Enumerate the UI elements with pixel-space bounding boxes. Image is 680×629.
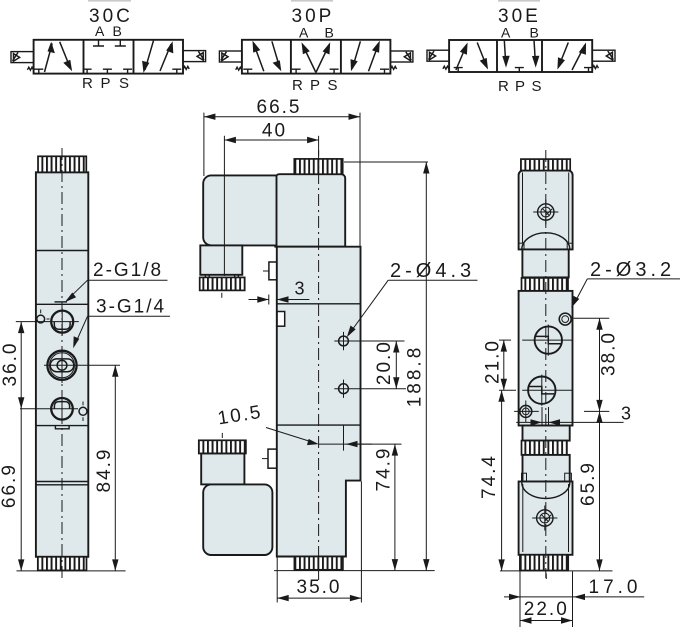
svg-text:74.4: 74.4 <box>479 454 500 499</box>
svg-text:22.0: 22.0 <box>524 599 569 620</box>
svg-text:P: P <box>515 78 526 95</box>
svg-text:20.0: 20.0 <box>374 340 395 385</box>
svg-text:3-G1/4: 3-G1/4 <box>96 297 166 318</box>
svg-text:B: B <box>325 25 334 41</box>
svg-text:S: S <box>532 78 543 95</box>
svg-text:3: 3 <box>621 404 631 424</box>
svg-text:2-Ø3.2: 2-Ø3.2 <box>590 259 675 281</box>
svg-text:84.9: 84.9 <box>94 448 115 493</box>
svg-text:66.5: 66.5 <box>257 97 302 118</box>
svg-text:38.0: 38.0 <box>598 331 619 376</box>
svg-text:S: S <box>119 75 130 92</box>
svg-text:R: R <box>498 78 510 95</box>
svg-text:10.5: 10.5 <box>216 402 264 430</box>
svg-text:A: A <box>501 25 511 41</box>
svg-text:B: B <box>530 25 539 41</box>
svg-text:65.9: 65.9 <box>578 461 599 506</box>
svg-text:40: 40 <box>262 121 287 142</box>
svg-text:2-Ø4.3: 2-Ø4.3 <box>390 260 475 282</box>
svg-text:74.9: 74.9 <box>374 447 395 492</box>
svg-text:P: P <box>101 75 112 92</box>
svg-text:2-G1/8: 2-G1/8 <box>93 260 163 281</box>
svg-text:3: 3 <box>294 279 304 299</box>
svg-text:36.0: 36.0 <box>0 342 21 387</box>
svg-text:188.8: 188.8 <box>405 345 426 408</box>
svg-text:R: R <box>292 77 304 94</box>
svg-text:A: A <box>95 23 105 39</box>
svg-text:B: B <box>113 23 122 39</box>
svg-text:S: S <box>328 77 339 94</box>
svg-text:21.0: 21.0 <box>482 339 503 384</box>
svg-text:A: A <box>299 25 309 41</box>
svg-text:35.0: 35.0 <box>297 577 342 598</box>
svg-text:R: R <box>82 75 94 92</box>
svg-text:66.9: 66.9 <box>0 463 20 508</box>
svg-text:17.0: 17.0 <box>589 577 642 598</box>
svg-text:P: P <box>310 77 321 94</box>
